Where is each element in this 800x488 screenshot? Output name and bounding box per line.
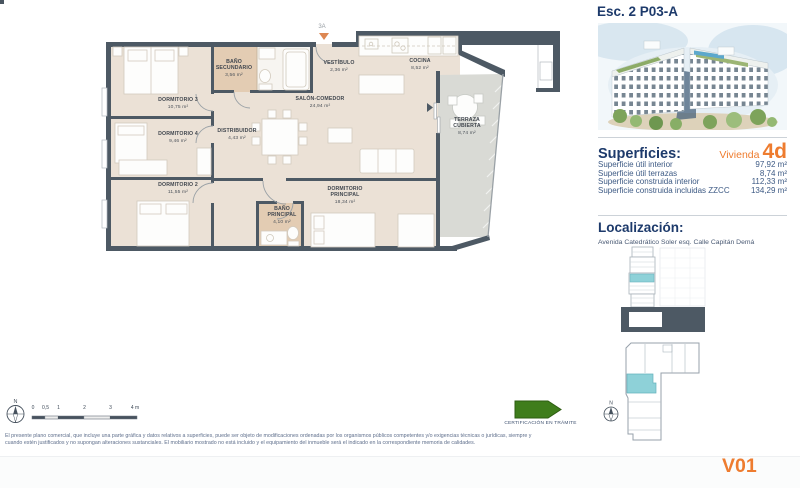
room-area: 2,36 m² bbox=[294, 68, 384, 74]
sheet-title: Esc. 2 P03-A bbox=[597, 4, 678, 19]
room-name: DORMITORIO 2 bbox=[133, 182, 223, 188]
room-label-dormitorio-2: DORMITORIO 2 11,55 m² bbox=[133, 182, 223, 196]
certification-arrow-icon bbox=[515, 401, 561, 418]
scale-bar bbox=[32, 416, 137, 419]
room-area: 4,10 m² bbox=[237, 220, 327, 226]
highlighted-unit bbox=[627, 374, 656, 393]
room-label-dormitorio-principal: DORMITORIO PRINCIPAL 18,34 m² bbox=[300, 186, 390, 206]
plan-sheet: DORMITORIO 3 10,75 m² DORMITORIO 4 9,46 … bbox=[0, 0, 800, 488]
unit-label: Vivienda bbox=[719, 149, 759, 161]
room-name: PRINCIPAL bbox=[300, 192, 390, 198]
scale-tick: 1 bbox=[57, 405, 60, 411]
building-render-image bbox=[598, 23, 787, 130]
room-name: VESTÍBULO bbox=[294, 60, 384, 66]
room-area: 10,75 m² bbox=[133, 105, 223, 111]
footer-strip bbox=[0, 456, 800, 488]
building-section-diagram bbox=[620, 246, 708, 334]
appliance-box bbox=[540, 62, 552, 80]
localizacion-heading: Localización: bbox=[598, 220, 684, 235]
room-name: PRINCIPAL bbox=[237, 212, 327, 218]
localizacion-address: Avenida Catedrático Soler esq. Calle Cap… bbox=[598, 239, 754, 246]
windows bbox=[102, 88, 107, 228]
scale-tick: 3 bbox=[109, 405, 112, 411]
room-label-bano-secundario: BAÑO SECUNDARIO 3,56 m² bbox=[189, 59, 279, 79]
room-area: 8,74 m² bbox=[422, 131, 512, 137]
room-label-terraza-cubierta: TERRAZA CUBIERTA 8,74 m² bbox=[422, 117, 512, 137]
room-label-cocina: COCINA 8,52 m² bbox=[375, 58, 465, 72]
room-name: COCINA bbox=[375, 58, 465, 64]
divider bbox=[598, 215, 787, 216]
room-name: SALÓN-COMEDOR bbox=[275, 96, 365, 102]
key-plan-diagram: N bbox=[600, 340, 708, 446]
plan-version-label: V01 bbox=[722, 455, 757, 478]
room-name: CUBIERTA bbox=[422, 123, 512, 129]
room-label-bano-principal: BAÑO PRINCIPAL 4,10 m² bbox=[237, 206, 327, 226]
highlighted-floor bbox=[630, 274, 654, 282]
scale-tick: 2 bbox=[83, 405, 86, 411]
room-label-salon-comedor: SALÓN-COMEDOR 24,94 m² bbox=[275, 96, 365, 110]
row-value: 134,29 m² bbox=[751, 187, 787, 196]
row-label: Superficie construida incluidas ZZCC bbox=[598, 187, 730, 196]
disclaimer-line-1: El presente plano comercial, que incluye… bbox=[5, 433, 531, 439]
room-area: 3,56 m² bbox=[189, 73, 279, 79]
room-label-distribuidor: DISTRIBUIDOR 4,43 m² bbox=[192, 128, 282, 142]
room-label-dormitorio-3: DORMITORIO 3 10,75 m² bbox=[133, 97, 223, 111]
superficies-row: Superficie construida incluidas ZZCC 134… bbox=[598, 187, 787, 196]
scale-tick: 0,5 bbox=[42, 405, 49, 411]
entrance-arrow-icon bbox=[319, 33, 329, 40]
footer-graphics: N bbox=[0, 393, 590, 433]
divider bbox=[598, 137, 787, 138]
room-area: 11,55 m² bbox=[133, 190, 223, 196]
disclaimer-line-2: cuando estén justificados y no supongan … bbox=[5, 440, 475, 446]
scale-tick: 0 bbox=[32, 405, 35, 411]
room-area: 18,34 m² bbox=[300, 200, 390, 206]
room-area: 4,43 m² bbox=[192, 136, 282, 142]
north-compass-icon: N bbox=[7, 399, 24, 423]
room-label-vestibulo: VESTÍBULO 2,36 m² bbox=[294, 60, 384, 74]
north-compass-icon: N bbox=[604, 401, 618, 422]
certification-status-label: CERTIFICACIÓN EN TRÁMITE bbox=[503, 421, 578, 426]
room-area: 8,52 m² bbox=[375, 66, 465, 72]
compass-north-label: N bbox=[609, 401, 613, 407]
room-name: DISTRIBUIDOR bbox=[192, 128, 282, 134]
room-name: SECUNDARIO bbox=[189, 65, 279, 71]
room-area: 24,94 m² bbox=[275, 104, 365, 110]
room-name: DORMITORIO 3 bbox=[133, 97, 223, 103]
compass-north-label: N bbox=[14, 399, 18, 405]
scale-tick: 4 m bbox=[131, 405, 139, 411]
superficies-table: Superficie útil interior 97,92 m² Superf… bbox=[598, 161, 787, 195]
entrance-unit-label: 3A bbox=[312, 24, 332, 30]
